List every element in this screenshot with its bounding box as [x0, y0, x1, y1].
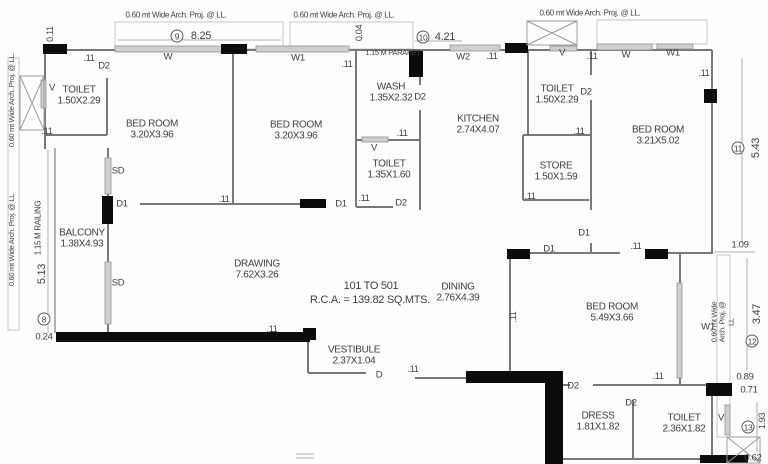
- window-w1-bed2: W1: [291, 54, 305, 65]
- door-d2-dress: D2: [567, 382, 579, 393]
- dimension-6: .11: [699, 68, 710, 78]
- grid-8: 8: [38, 313, 51, 326]
- toilet-mid-label: TOILET 1.35X1.60: [368, 159, 411, 182]
- label-layer: TOILET 1.50X2.29BED ROOM 3.20X3.96BED RO…: [0, 0, 768, 464]
- door-d2-toilet-tr: D2: [580, 88, 592, 99]
- door-d1-bed3: D1: [578, 229, 590, 240]
- vent-shaft-top: V: [559, 49, 565, 60]
- dimension-25: 0.89: [736, 373, 753, 384]
- door-d1-bed4: D1: [543, 245, 555, 256]
- kitchen-label: KITCHEN 2.74X4.07: [457, 114, 500, 137]
- flats-range-label: 101 TO 501: [344, 280, 399, 292]
- dimension-28: 0.62: [744, 454, 761, 464]
- dimension-4: .11: [487, 51, 498, 61]
- dimension-21: 5.13: [36, 264, 48, 284]
- dimension-12: .11: [408, 364, 419, 374]
- arch-proj-left-lower: 0.60 mt Wide Arch. Proj. @ LL: [8, 194, 16, 286]
- door-d-entry: D: [376, 371, 383, 382]
- dimension-8: .11: [525, 191, 536, 201]
- arch-proj-top-right: 0.60 mt Wide Arch. Proj. @ LL.: [540, 8, 641, 17]
- bedroom-1-label: BED ROOM 3.20X3.96: [126, 119, 178, 142]
- bedroom-4-label: BED ROOM 5.49X3.66: [586, 302, 638, 325]
- window-w-bed3: W: [622, 51, 631, 62]
- dimension-9: .11: [359, 193, 370, 203]
- dimension-7: .11: [574, 126, 585, 136]
- floor-plan: TOILET 1.50X2.29BED ROOM 3.20X3.96BED RO…: [0, 0, 768, 464]
- vent-toilet-mid: V: [371, 144, 377, 155]
- railing-label: 1.15 M RAILING: [33, 201, 42, 256]
- vent-toilet-br: V: [718, 414, 724, 425]
- door-d1-bed1: D1: [335, 200, 347, 211]
- dimension-3: .11: [397, 128, 408, 138]
- door-d2-toilet-tl: D2: [98, 62, 110, 73]
- window-w2-kitchen: W2: [456, 53, 470, 64]
- slider-sd-upper: SD: [112, 167, 125, 178]
- wash-label: WASH 1.35X2.32: [370, 82, 413, 105]
- dimension-27: 1.93: [757, 413, 767, 429]
- slider-sd-lower: SD: [112, 279, 125, 290]
- dimension-15: .11: [653, 371, 664, 381]
- dimension-13: .11: [631, 241, 642, 251]
- dining-label: DINING 2.76X4.39: [437, 282, 480, 305]
- toilet-br-label: TOILET 2.36X1.82: [663, 413, 706, 436]
- arch-proj-top-mid: 0.60 mt Wide Arch. Proj. @ LL.: [294, 10, 395, 19]
- dimension-22: 0.24: [35, 333, 52, 344]
- parapet-label: 1.15 M PARAPET: [365, 49, 420, 57]
- dimension-2: .11: [342, 59, 353, 69]
- bedroom-3-label: BED ROOM 3.21X5.02: [632, 125, 684, 148]
- grid-10: 10: [417, 31, 430, 44]
- drawing-label: DRAWING 7.62X3.26: [234, 259, 280, 282]
- rca-area-label: R.C.A. = 139.82 SQ.MTS.: [310, 294, 430, 306]
- dimension-23: 1.09: [731, 241, 748, 252]
- dimension-10: .11: [219, 194, 230, 204]
- dimension-5: .11: [587, 51, 598, 61]
- door-d2-wash: D2: [414, 93, 426, 104]
- window-w-bed1: W: [164, 53, 173, 64]
- balcony-label: BALCONY 1.38X4.93: [59, 228, 105, 251]
- bedroom-2-label: BED ROOM 3.20X3.96: [270, 120, 322, 143]
- dimension-26: 0.71: [740, 386, 757, 397]
- store-label: STORE 1.50X1.59: [535, 161, 578, 184]
- dimension-24: 3.47: [751, 304, 763, 324]
- door-d2-toilet-br: D2: [625, 399, 637, 410]
- grid-11: 11: [732, 142, 745, 155]
- dimension-14: .11: [508, 312, 518, 323]
- dimension-16: 0.11: [45, 26, 55, 42]
- dimension-1: .11: [42, 126, 53, 136]
- arch-proj-top-left: 0.60 mt Wide Arch. Proj. @ LL.: [126, 10, 227, 19]
- door-d2-toilet-mid: D2: [395, 199, 407, 210]
- dimension-0: .11: [84, 53, 95, 63]
- grid-9: 9: [171, 30, 184, 43]
- grid-12: 12: [746, 335, 759, 348]
- dimension-18: 8.25: [191, 30, 211, 42]
- dimension-20: 5.43: [750, 138, 762, 158]
- dimension-17: 0.04: [354, 25, 364, 41]
- arch-proj-right: 0.60 mt Wide Arch. Proj. @ LL: [710, 300, 735, 345]
- arch-proj-left-upper: 0.60 mt Wide Arch. Proj. @ LL.: [8, 53, 16, 147]
- window-w1-bed3: W1: [666, 49, 680, 60]
- vent-toilet-tl: V: [49, 84, 55, 95]
- dimension-11: .11: [267, 324, 278, 334]
- toilet-tl-label: TOILET 1.50X2.29: [58, 85, 101, 108]
- dress-label: DRESS 1.81X1.82: [577, 411, 620, 434]
- dimension-19: 4.21: [435, 31, 455, 43]
- toilet-tr-label: TOILET 1.50X2.29: [536, 84, 579, 107]
- door-d1-balcony: D1: [116, 200, 128, 211]
- grid-13: 13: [742, 421, 755, 434]
- vestibule-label: VESTIBULE 2.37X1.04: [328, 345, 380, 368]
